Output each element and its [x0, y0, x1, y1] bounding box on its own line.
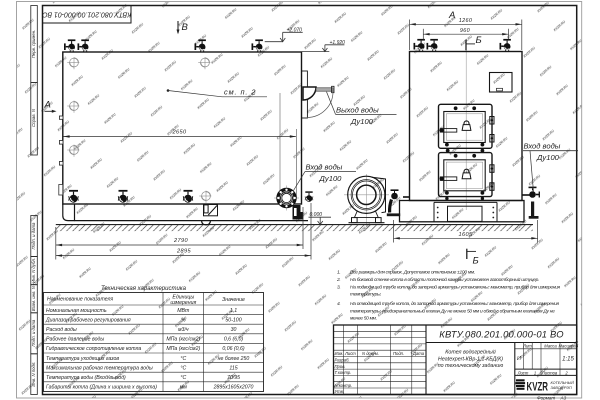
- svg-text:Инв. N дубл.: Инв. N дубл.: [31, 258, 36, 283]
- svg-text:0,06 (0,6): 0,06 (0,6): [222, 346, 244, 352]
- svg-text:70/95: 70/95: [227, 375, 240, 381]
- svg-text:+2.070: +2.070: [287, 27, 303, 33]
- svg-text:измерения: измерения: [170, 300, 196, 306]
- svg-text:ЗАВОД РЭП: ЗАВОД РЭП: [551, 386, 572, 390]
- svg-text:КВТУ.080.201.00.000-01 ВО: КВТУ.080.201.00.000-01 ВО: [42, 10, 132, 17]
- svg-text:Все размеры для справок. Допу: Все размеры для справок. Допустимое откл…: [350, 270, 475, 276]
- svg-text:А: А: [44, 100, 51, 111]
- svg-text:Вход воды: Вход воды: [306, 163, 343, 172]
- svg-text:3.: 3.: [337, 285, 340, 291]
- svg-text:Диапазон рабочего регулировани: Диапазон рабочего регулирования: [45, 317, 131, 323]
- svg-text:Масштаб: Масштаб: [559, 343, 579, 348]
- svg-text:На боковой стенке котла в обла: На боковой стенке котла в области топочн…: [350, 276, 539, 283]
- svg-text:Разраб.: Разраб.: [335, 358, 350, 363]
- svg-text:0,6 (6,0): 0,6 (6,0): [224, 337, 244, 343]
- svg-text:Значение: Значение: [222, 297, 245, 303]
- svg-text:На отводящей трубе котла, до з: На отводящей трубе котла, до запорной ар…: [350, 300, 560, 307]
- svg-text:1260: 1260: [459, 18, 473, 24]
- svg-text:1,1: 1,1: [230, 308, 237, 314]
- svg-text:мм: мм: [180, 385, 188, 391]
- svg-text:Лит.: Лит.: [522, 343, 533, 348]
- svg-text:Котел водогрейный: Котел водогрейный: [445, 349, 495, 356]
- svg-text:МВт: МВт: [177, 308, 190, 314]
- svg-text:2790: 2790: [173, 238, 189, 244]
- svg-text:Т.контр.: Т.контр.: [335, 370, 352, 375]
- svg-text:Утв.: Утв.: [335, 389, 345, 394]
- svg-text:°С: °С: [180, 375, 186, 381]
- svg-text:Н.контр.: Н.контр.: [335, 383, 353, 388]
- svg-text:Габариты котла (Длина х ширина: Габариты котла (Длина х ширина х высота): [46, 385, 157, 391]
- svg-text:В: В: [182, 22, 189, 33]
- svg-text:температуры.: температуры.: [350, 293, 381, 298]
- svg-text:КОТЕЛЬНЫЙ: КОТЕЛЬНЫЙ: [551, 381, 575, 385]
- svg-text:Пров.: Пров.: [335, 364, 346, 369]
- svg-text:Перв. примен.: Перв. примен.: [31, 30, 36, 59]
- svg-text:1:15: 1:15: [562, 357, 574, 363]
- svg-text:по техническому заданию: по техническому заданию: [438, 363, 503, 369]
- svg-text:Листов: Листов: [541, 370, 558, 375]
- svg-text:Температура уходящих газов: Температура уходящих газов: [46, 356, 119, 362]
- svg-text:0.000: 0.000: [310, 212, 323, 218]
- svg-text:Расход воды: Расход воды: [46, 327, 77, 333]
- svg-text:1: 1: [534, 370, 536, 375]
- svg-text:50-100: 50-100: [225, 317, 241, 323]
- svg-text:+1.920: +1.920: [330, 40, 346, 46]
- svg-text:Ду100: Ду100: [350, 117, 374, 126]
- svg-text:КВТУ.080.201.00.000-01 ВО: КВТУ.080.201.00.000-01 ВО: [439, 329, 564, 340]
- svg-text:Наименование показателя: Наименование показателя: [47, 297, 113, 303]
- svg-text:см. п. 2: см. п. 2: [224, 88, 256, 97]
- svg-text:Heatexpert-КВр-1,1-КБД(К): Heatexpert-КВр-1,1-КБД(К): [438, 356, 503, 362]
- svg-text:И: И: [517, 356, 521, 362]
- svg-text:Лист: Лист: [344, 351, 356, 356]
- svg-text:KVZR: KVZR: [527, 379, 549, 393]
- svg-text:2895х1605х2070: 2895х1605х2070: [213, 385, 254, 391]
- svg-text:2650: 2650: [171, 129, 187, 135]
- svg-text:Взам. инв. N: Взам. инв. N: [31, 285, 36, 311]
- svg-text:А: А: [448, 10, 455, 21]
- svg-text:2895: 2895: [176, 248, 192, 254]
- svg-text:А3: А3: [560, 396, 567, 400]
- svg-text:Изм.: Изм.: [335, 351, 344, 356]
- svg-text:МПа (кгс/см2): МПа (кгс/см2): [166, 346, 200, 352]
- svg-text:1605: 1605: [458, 232, 473, 238]
- svg-text:°С: °С: [180, 365, 186, 371]
- svg-text:Ду100: Ду100: [536, 153, 560, 162]
- svg-text:Максимальная рабочая температу: Максимальная рабочая температура воды: [46, 365, 153, 371]
- svg-text:N докум.: N докум.: [362, 351, 379, 356]
- svg-text:4.: 4.: [337, 301, 340, 307]
- svg-text:Ду100: Ду100: [319, 174, 343, 183]
- svg-text:Температура воды (Вход/выход): Температура воды (Вход/выход): [46, 375, 126, 381]
- svg-text:2.: 2.: [336, 277, 340, 283]
- svg-text:температуры, предохранительны: температуры, предохранительный клапан Ду…: [350, 307, 555, 314]
- svg-text:На подводящей трубе котла,: На подводящей трубе котла, до запорной а…: [350, 284, 561, 291]
- svg-text:Инв. N подл.: Инв. N подл.: [31, 361, 36, 386]
- svg-text:115: 115: [229, 365, 237, 371]
- svg-text:Лист: Лист: [517, 370, 529, 375]
- svg-text:МПа (кгс/см2): МПа (кгс/см2): [166, 337, 200, 343]
- svg-text:Подп. и дата: Подп. и дата: [31, 319, 36, 347]
- svg-text:Б: Б: [473, 256, 479, 267]
- svg-text:Б: Б: [476, 35, 482, 46]
- svg-text:Рабочее давление воды: Рабочее давление воды: [46, 337, 104, 343]
- svg-text:Подп.: Подп.: [393, 351, 404, 356]
- svg-text:1.: 1.: [337, 270, 340, 276]
- svg-text:не более 250: не более 250: [218, 356, 250, 362]
- svg-text:Техническая характеристика: Техническая характеристика: [101, 286, 187, 292]
- svg-text:°С: °С: [180, 356, 186, 362]
- svg-text:%: %: [181, 317, 186, 323]
- svg-text:Справ. N: Справ. N: [31, 108, 36, 127]
- svg-text:Гидравлическое сопротивление к: Гидравлическое сопротивление котла: [46, 346, 141, 352]
- svg-text:Подп. и дата: Подп. и дата: [31, 222, 36, 250]
- svg-text:Вход воды: Вход воды: [524, 142, 561, 151]
- svg-text:Выход воды: Выход воды: [336, 106, 379, 115]
- svg-text:Формат: Формат: [537, 396, 555, 400]
- svg-text:менее 50 мм.: менее 50 мм.: [350, 315, 377, 321]
- svg-text:30: 30: [231, 327, 237, 333]
- svg-text:м3/ч: м3/ч: [178, 327, 189, 333]
- svg-text:Масса: Масса: [544, 343, 557, 348]
- svg-text:Дата: Дата: [412, 351, 425, 356]
- svg-text:Номинальная мощность: Номинальная мощность: [46, 308, 107, 314]
- svg-text:960: 960: [460, 28, 470, 34]
